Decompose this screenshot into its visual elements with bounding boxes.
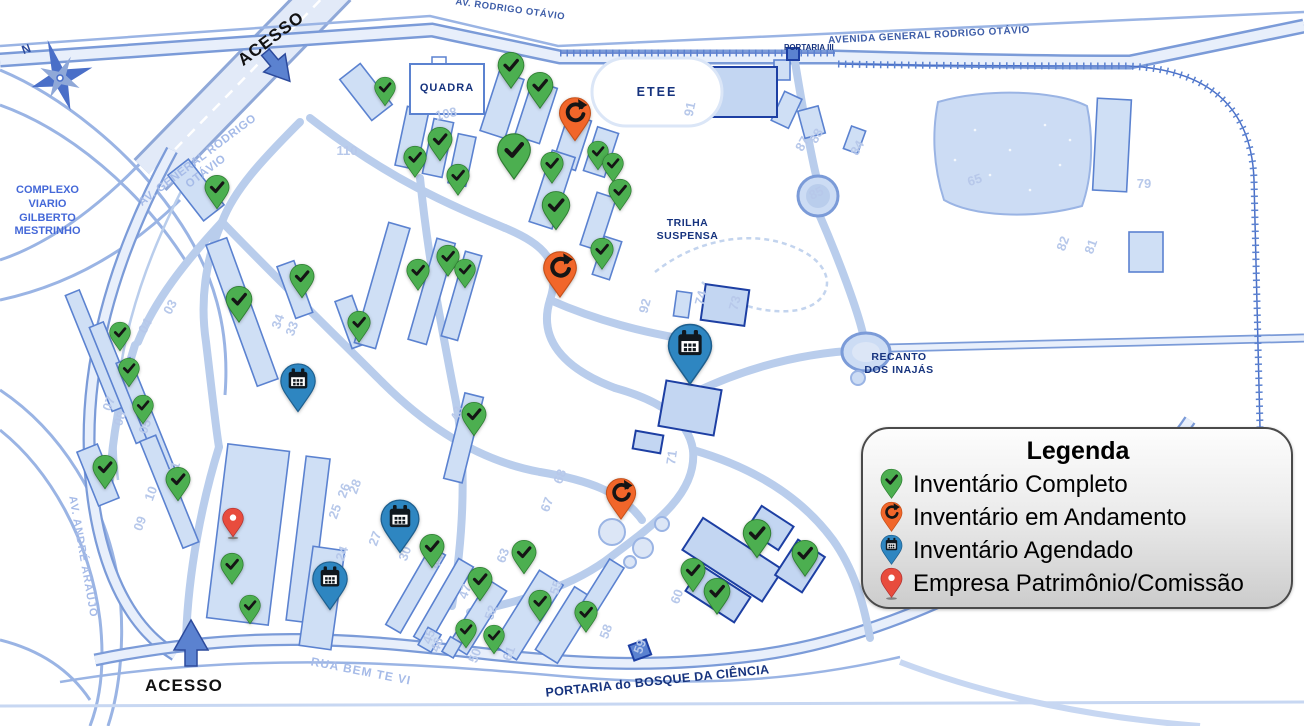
legend-item-label: Empresa Patrimônio/Comissão bbox=[913, 570, 1244, 598]
map-marker-complete[interactable] bbox=[539, 151, 565, 186]
label-trilha-suspensa: TRILHA SUSPENSA bbox=[640, 217, 735, 243]
map-marker-complete[interactable] bbox=[219, 552, 245, 587]
map-marker-in-progress[interactable] bbox=[604, 477, 638, 523]
map-base: 1081109187888485796582819274733433030405… bbox=[0, 0, 1304, 726]
map-marker-complete[interactable] bbox=[164, 466, 192, 504]
map-marker-complete[interactable] bbox=[495, 132, 533, 183]
in-progress-pin-icon bbox=[879, 501, 904, 534]
map-marker-complete[interactable] bbox=[445, 163, 471, 198]
map-marker-complete[interactable] bbox=[224, 285, 254, 326]
map-marker-complete[interactable] bbox=[527, 589, 553, 624]
legend-item-label: Inventário Agendado bbox=[913, 537, 1133, 565]
building-number: 58 bbox=[596, 622, 615, 641]
map-marker-complete[interactable] bbox=[741, 518, 773, 561]
company-pin-icon bbox=[879, 567, 904, 600]
label-quadra: QUADRA bbox=[410, 82, 484, 96]
map-marker-complete[interactable] bbox=[418, 533, 446, 571]
map-marker-complete[interactable] bbox=[117, 357, 141, 389]
building-number: 110 bbox=[337, 143, 358, 158]
map-marker-complete[interactable] bbox=[91, 454, 119, 492]
east-path bbox=[888, 338, 1304, 348]
building-number: 82 bbox=[1053, 234, 1072, 253]
legend-title: Legenda bbox=[879, 437, 1277, 466]
legend-item-label: Inventário Completo bbox=[913, 471, 1128, 499]
legend-item-in-progress: Inventário em Andamento bbox=[879, 501, 1277, 534]
label-acesso-bottom: ACESSO bbox=[145, 675, 223, 696]
lake bbox=[934, 93, 1091, 215]
map-marker-in-progress[interactable] bbox=[541, 250, 579, 301]
building-number: 68 bbox=[550, 467, 569, 486]
map-marker-complete[interactable] bbox=[454, 618, 478, 650]
map-marker-complete[interactable] bbox=[108, 321, 132, 353]
map-marker-complete[interactable] bbox=[405, 258, 431, 293]
building-number: 79 bbox=[1137, 176, 1151, 191]
map-marker-company[interactable] bbox=[221, 507, 245, 539]
label-recanto-inajas: RECANTO DOS INAJÁS bbox=[848, 351, 950, 377]
map-marker-complete[interactable] bbox=[238, 594, 262, 626]
map-marker-complete[interactable] bbox=[510, 539, 538, 577]
legend-item-scheduled: Inventário Agendado bbox=[879, 534, 1277, 567]
map-marker-scheduled[interactable] bbox=[278, 362, 318, 416]
label-complexo-viario: COMPLEXO VIARIO GILBERTO MESTRINHO bbox=[0, 184, 95, 239]
building-number: 71 bbox=[663, 449, 680, 465]
map-marker-complete[interactable] bbox=[288, 263, 316, 301]
building-number: 108 bbox=[434, 104, 458, 123]
building-number: 92 bbox=[636, 297, 654, 315]
building-number: 81 bbox=[1081, 237, 1100, 256]
map-marker-in-progress[interactable] bbox=[557, 96, 593, 145]
map-marker-scheduled[interactable] bbox=[665, 322, 715, 390]
map-marker-complete[interactable] bbox=[790, 539, 820, 580]
map-marker-scheduled[interactable] bbox=[378, 498, 422, 557]
map-marker-complete[interactable] bbox=[702, 577, 732, 618]
legend: Legenda Inventário Completo Inventário e… bbox=[861, 427, 1293, 609]
building-number: 25 bbox=[325, 502, 344, 521]
map-marker-complete[interactable] bbox=[131, 394, 155, 426]
building-number: 67 bbox=[537, 495, 556, 514]
map-marker-complete[interactable] bbox=[589, 237, 615, 272]
map-marker-complete[interactable] bbox=[540, 190, 572, 233]
complete-pin-icon bbox=[879, 468, 904, 501]
map-marker-complete[interactable] bbox=[460, 401, 488, 439]
map-marker-complete[interactable] bbox=[482, 624, 506, 656]
map-marker-complete[interactable] bbox=[496, 51, 526, 92]
legend-item-company: Empresa Patrimônio/Comissão bbox=[879, 567, 1277, 600]
map-marker-complete[interactable] bbox=[373, 76, 397, 108]
legend-item-complete: Inventário Completo bbox=[879, 468, 1277, 501]
building-number: 09 bbox=[130, 514, 149, 533]
legend-item-label: Inventário em Andamento bbox=[913, 504, 1187, 532]
map-marker-complete[interactable] bbox=[466, 566, 494, 604]
map-marker-complete[interactable] bbox=[426, 126, 454, 164]
map-marker-complete[interactable] bbox=[573, 600, 599, 635]
building-number: 91 bbox=[681, 100, 699, 117]
map-marker-complete[interactable] bbox=[607, 178, 633, 213]
label-etee: ETEE bbox=[618, 85, 696, 101]
map-marker-complete[interactable] bbox=[402, 145, 428, 180]
map-marker-complete[interactable] bbox=[203, 174, 231, 212]
map-marker-complete[interactable] bbox=[346, 310, 372, 345]
label-portaria-iii: PORTARIA III bbox=[784, 43, 834, 53]
map-marker-complete[interactable] bbox=[453, 258, 477, 290]
map-marker-scheduled[interactable] bbox=[310, 560, 350, 614]
access-arrow-bottom-icon bbox=[174, 620, 208, 666]
scheduled-pin-icon bbox=[879, 534, 904, 567]
map-marker-complete[interactable] bbox=[525, 71, 555, 112]
